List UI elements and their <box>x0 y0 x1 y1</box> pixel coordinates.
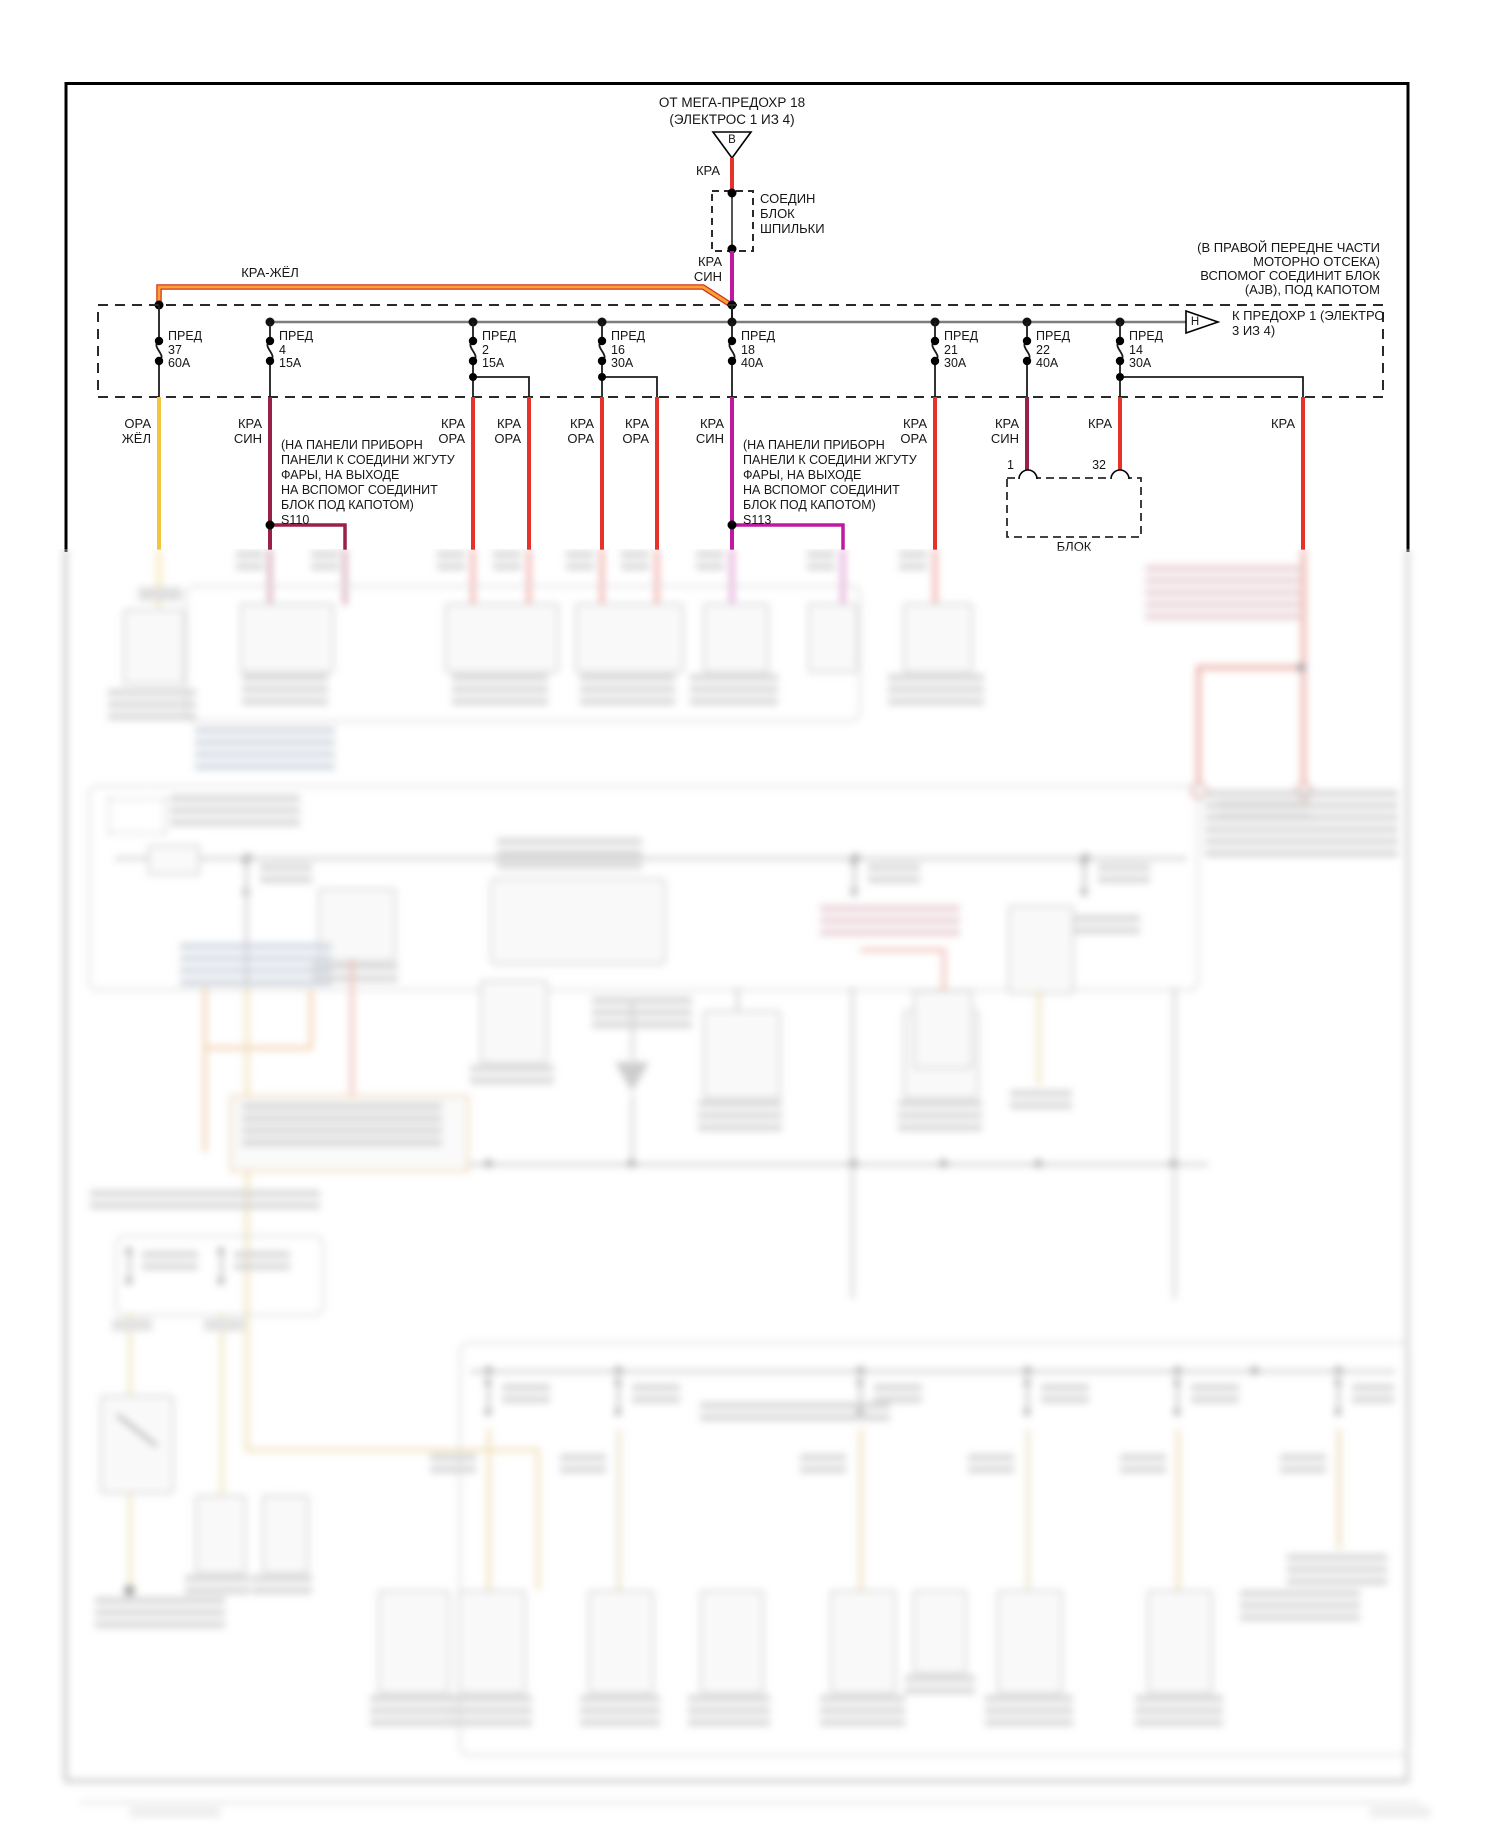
junction-dot <box>728 245 737 254</box>
wire-kra-zhel <box>159 287 731 305</box>
source-title-line1: ОТ МЕГА-ПРЕДОХР 18 <box>632 95 832 110</box>
pin-socket-icon <box>1019 470 1037 479</box>
wire-kra-zhel-edge <box>159 287 731 305</box>
fuse-4-label: ПРЕД415A <box>279 330 313 371</box>
blurred-diagram-region <box>0 549 1500 1828</box>
wire-label-kra-2: КРА <box>1239 416 1295 431</box>
blur-wash-overlay <box>0 549 1500 1828</box>
wire-label-kra-zhel: КРА-ЖЁЛ <box>195 265 345 280</box>
wire-label-kra-1: КРА <box>1056 416 1112 431</box>
pin-socket-icon <box>1111 470 1129 479</box>
page-border <box>66 84 1408 553</box>
crisp-region: ОТ МЕГА-ПРЕДОХР 18 (ЭЛЕКТРОС 1 ИЗ 4) B К… <box>0 0 1500 549</box>
wire-label-kra-sin-2: КРАСИН <box>668 416 724 446</box>
wire-label-kra-ora-2: КРАОРА <box>465 416 521 446</box>
junction-dot <box>155 301 164 310</box>
block-connector-box <box>1007 478 1141 537</box>
fuse-37-label: ПРЕД3760A <box>168 330 202 371</box>
schematic-page: { "palette": { "red_wire": "#e63329", "y… <box>0 0 1500 1828</box>
exit-connector-letter: H <box>1186 315 1204 330</box>
splice-note-s110: (НА ПАНЕЛИ ПРИБОРНПАНЕЛИ К СОЕДИНИ ЖГУТУ… <box>281 438 455 528</box>
wire-label-kra-ora-3: КРАОРА <box>538 416 594 446</box>
splice-note-s113: (НА ПАНЕЛИ ПРИБОРНПАНЕЛИ К СОЕДИНИ ЖГУТУ… <box>743 438 917 528</box>
block-pin-32: 32 <box>1070 458 1106 473</box>
splice-id-s113: S113 <box>743 513 771 527</box>
fuse-16-label: ПРЕД1630A <box>611 330 645 371</box>
splice-block-box <box>712 191 753 251</box>
source-title-line2: (ЭЛЕКТРОС 1 ИЗ 4) <box>632 112 832 127</box>
fuse-21-label: ПРЕД2130A <box>944 330 978 371</box>
wire-label-kra-sin-3: КРАСИН <box>963 416 1019 446</box>
exit-destination-label: К ПРЕДОХР 1 (ЭЛЕКТРО3 ИЗ 4) <box>1232 308 1384 338</box>
location-note: (В ПРАВОЙ ПЕРЕДНЕ ЧАСТИМОТОРНО ОТСЕКА)ВС… <box>1080 241 1380 297</box>
wire-label-kra-feed: КРА <box>662 163 720 178</box>
fuse-22-label: ПРЕД2240A <box>1036 330 1070 371</box>
wire-label-ora-zhel: ОРАЖЁЛ <box>95 416 151 446</box>
wire-label-kra-ora-4: КРАОРА <box>593 416 649 446</box>
wire-label-kra-sin-feed: КРАСИН <box>652 254 722 284</box>
source-connector-letter: B <box>722 133 742 148</box>
fuse-14-label: ПРЕД1430A <box>1129 330 1163 371</box>
splice-block-label: СОЕДИНБЛОКШПИЛЬКИ <box>760 191 825 236</box>
block-pin-1: 1 <box>986 458 1014 473</box>
fuse-18-label: ПРЕД1840A <box>741 330 775 371</box>
junction-dot <box>728 189 737 198</box>
junction-dot <box>728 301 737 310</box>
fuse-2-label: ПРЕД215A <box>482 330 516 371</box>
splice-id-s110: S110 <box>281 513 309 527</box>
wire-label-kra-sin-1: КРАСИН <box>206 416 262 446</box>
